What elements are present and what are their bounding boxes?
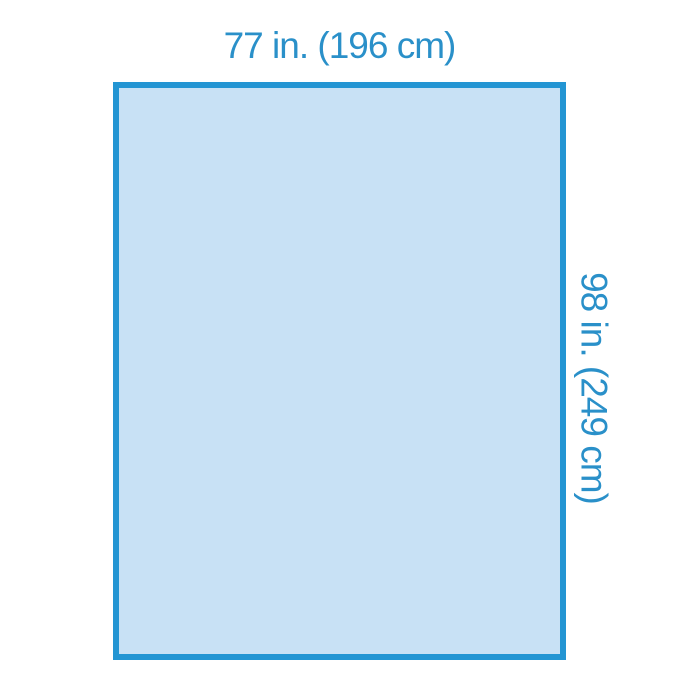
product-rectangle <box>113 82 566 660</box>
dimension-diagram: 77 in. (196 cm) 98 in. (249 cm) <box>0 0 700 700</box>
height-dimension-label: 98 in. (249 cm) <box>576 272 613 504</box>
width-dimension-label: 77 in. (196 cm) <box>113 27 566 64</box>
